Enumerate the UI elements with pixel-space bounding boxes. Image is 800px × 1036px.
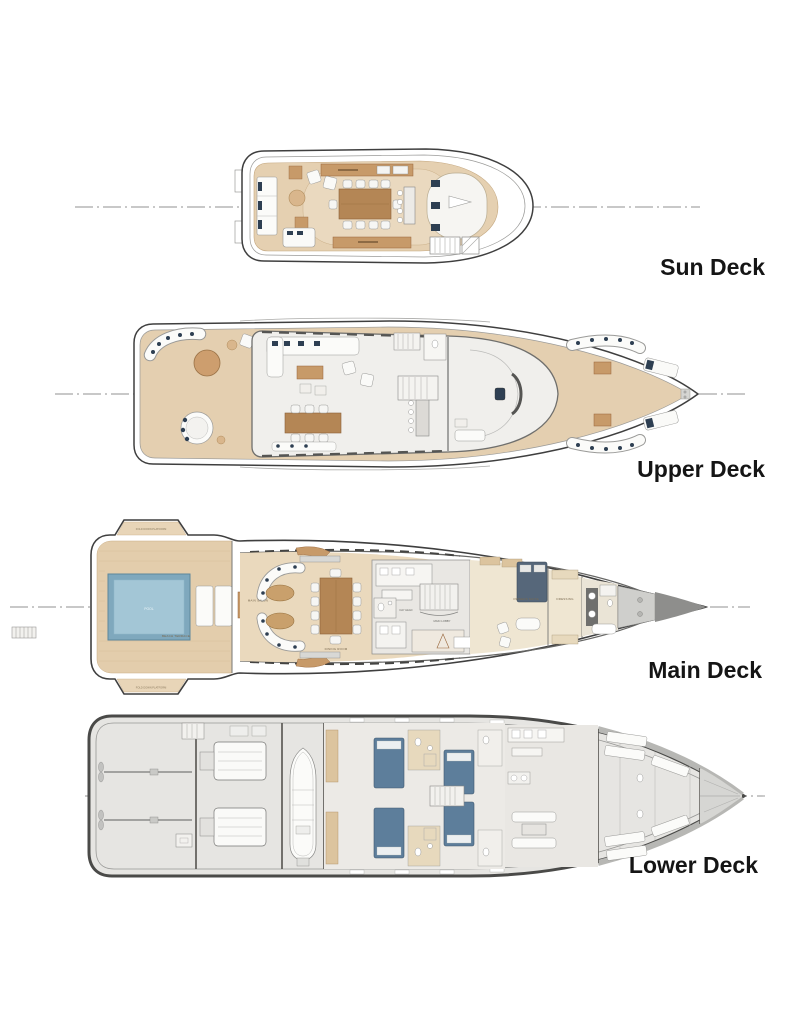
dressing-label: DRESSING	[556, 597, 574, 601]
lower-deck-label: Lower Deck	[458, 852, 758, 879]
tender-boat	[290, 748, 316, 860]
dining-room-label: DINING ROOM	[325, 647, 348, 651]
sun-deck-label: Sun Deck	[465, 254, 765, 281]
main-deck-label: Main Deck	[462, 657, 762, 684]
tender-garage	[290, 748, 316, 866]
boarding-ladder	[12, 627, 36, 638]
upper-deck-label: Upper Deck	[465, 456, 765, 483]
pool-label: POOL	[144, 607, 154, 611]
sun-deck-stairs	[430, 237, 479, 254]
owners-suite: OWNERS SUITE DRESSING	[470, 557, 585, 654]
main-lobby-galley: DAY HEAD MAIN LOBBY	[372, 560, 480, 654]
fold-down-platform-top-label: FOLD DOWN PLATFORM	[136, 527, 167, 531]
day-head-label: DAY HEAD	[399, 608, 412, 612]
fold-down-platform-bottom-label: FOLD DOWN PLATFORM	[136, 686, 167, 690]
beach-terrace-label: BEACH TERRACE	[162, 634, 190, 638]
chain-locker-bow	[700, 768, 742, 824]
guest-cabins	[324, 723, 505, 869]
main-lobby-label: MAIN LOBBY	[433, 619, 450, 623]
owners-suite-label: OWNERS SUITE	[513, 597, 539, 601]
main-deck-bow	[618, 586, 706, 628]
yacht-deck-plans-page: Sun Deck	[0, 0, 800, 1036]
main-salon-label: MAIN SALON	[248, 599, 269, 603]
upper-deck-plan	[40, 312, 760, 477]
owners-bathroom	[582, 578, 618, 636]
crew-area	[505, 725, 598, 867]
